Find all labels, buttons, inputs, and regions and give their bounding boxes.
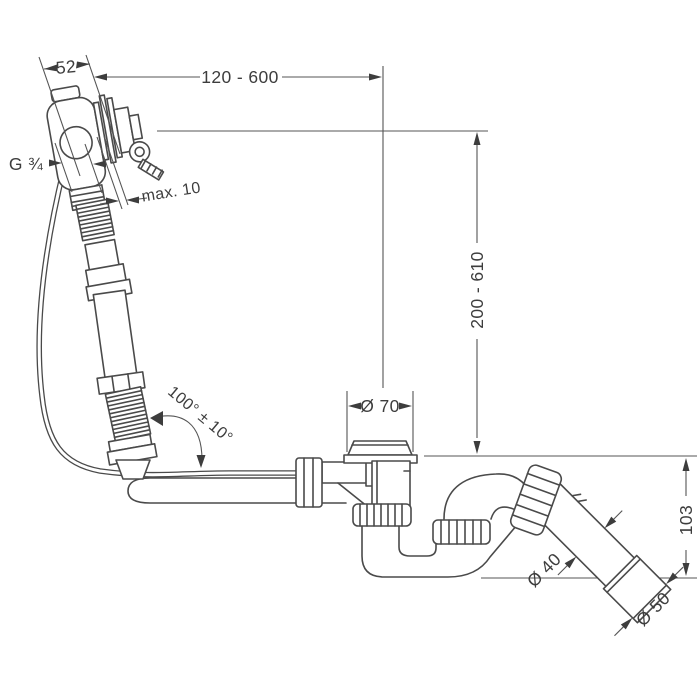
waste-tee-body [372,461,410,506]
dimension-angle: 100° ± 10° [150,383,236,468]
union-nut-second [433,520,490,544]
control-lever [128,138,165,184]
max-depth-label: max. 10 [140,179,202,205]
thread-size-label: G ¾ [9,154,43,174]
dimension-height: 200 - 610 [157,131,488,454]
corrugated-section-upper [76,199,114,240]
union-nut-main [353,504,411,526]
trap-height-label: 103 [676,505,696,535]
pipe-diameter-label: Ø 40 [523,549,565,591]
dim-width-label: 52 [55,56,77,78]
dimension-trap-height: 103 [676,458,696,576]
dim-reach-label: 120 - 600 [201,67,279,87]
telescopic-tube [93,290,136,378]
drain-diameter-label: Ø 70 [360,396,400,416]
technical-drawing-page: 52 120 - 600 200 - 610 G ¾ [0,0,700,700]
bath-waste-overflow-drawing: 52 120 - 600 200 - 610 G ¾ [0,0,700,700]
overflow-hose [76,199,157,479]
corrugated-section-lower [105,387,150,441]
drain-flange [344,441,417,463]
hose-adapter [116,460,150,479]
dim-height-label: 200 - 610 [467,251,487,329]
pipe-union-and-tee-inlet [296,458,375,507]
angle-label: 100° ± 10° [164,383,235,447]
